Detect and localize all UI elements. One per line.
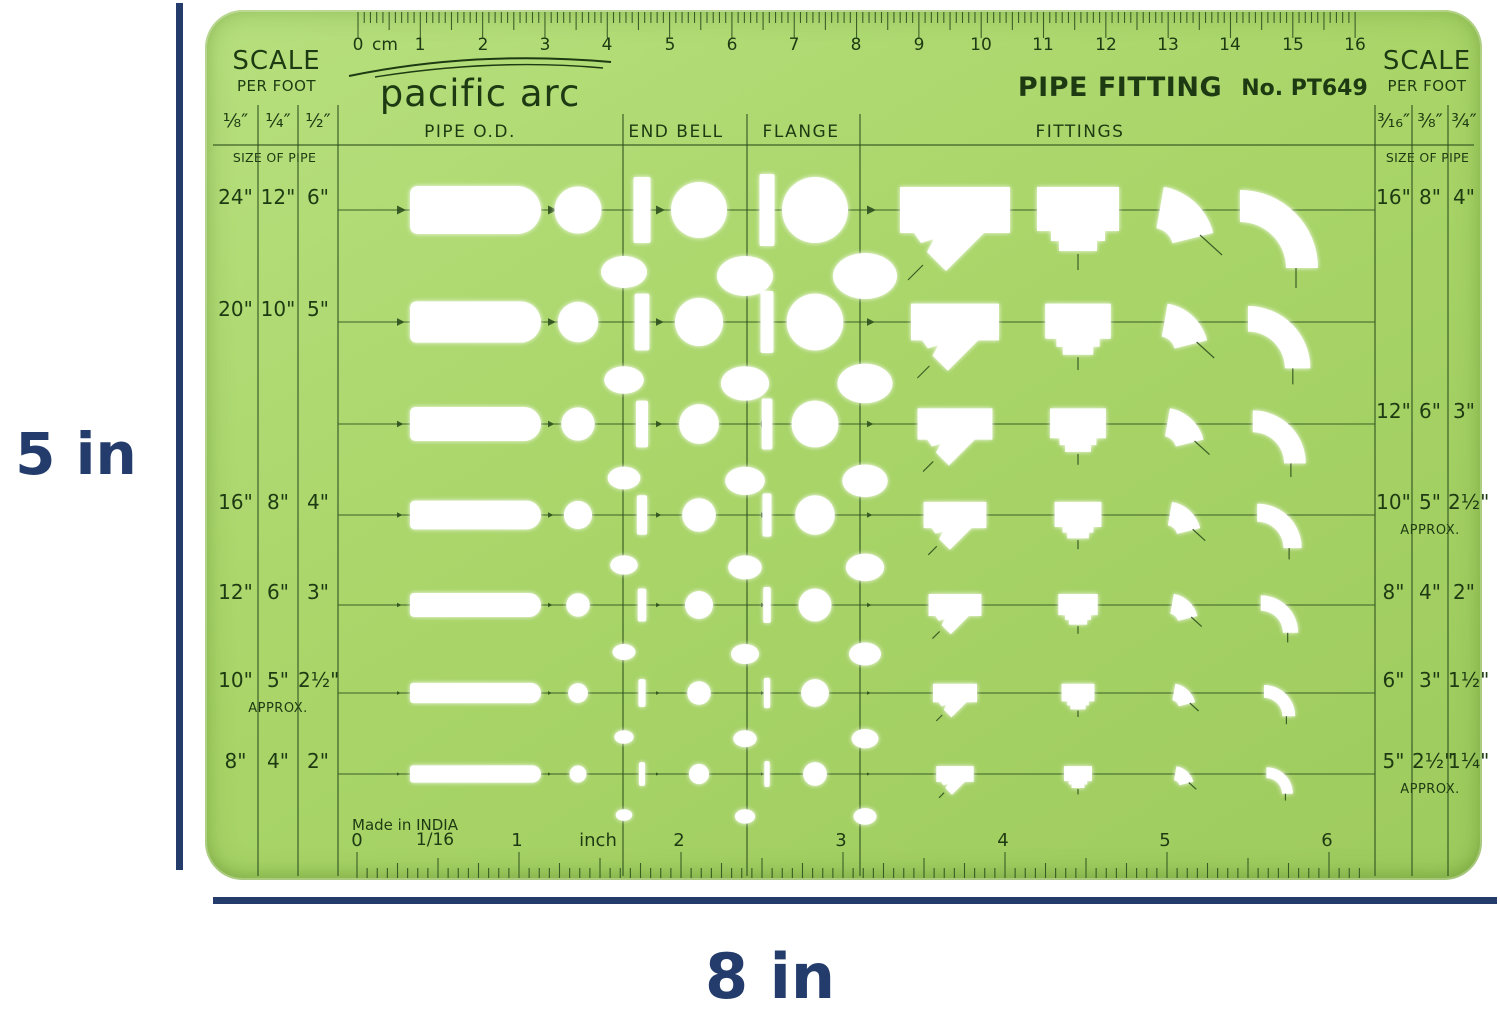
elbow-45-cutout: [1168, 502, 1200, 534]
row-size-label-left: 4": [258, 749, 298, 773]
gasket-ellipse-cutout: [601, 256, 647, 288]
left-size-of-pipe-label: SIZE OF PIPE: [211, 150, 338, 165]
elbow-90-cutout: [1264, 685, 1295, 716]
row-size-label-right: 12": [1375, 399, 1412, 423]
pipe-od-cutout: [410, 186, 541, 234]
gasket-ellipse-cutout: [616, 809, 633, 821]
row-size-label-left: 12": [258, 185, 298, 209]
flange-circle-cutout: [803, 762, 827, 786]
row-size-label-right: 2": [1448, 580, 1480, 604]
cm-ruler-number: 13: [1151, 35, 1185, 55]
stencil-cutouts: [410, 174, 1318, 825]
inch-ruler-label: 1: [487, 830, 547, 851]
lateral-fitting-cutout: [900, 187, 1010, 271]
end-bell-circle-cutout: [671, 182, 727, 238]
coupling-circle-cutout: [558, 302, 598, 342]
gasket-ellipse-cutout: [849, 643, 881, 666]
end-bell-bar-cutout: [634, 177, 651, 243]
gasket-ellipse-cutout: [610, 555, 638, 574]
row-size-label-right: 4": [1448, 185, 1480, 209]
stencil-row: [410, 761, 1293, 825]
width-dimension-line: [213, 897, 1497, 904]
row-approx-note-right: APPROX.: [1383, 523, 1477, 538]
flange-bar-cutout: [764, 678, 770, 708]
stencil-row: [410, 678, 1295, 748]
elbow-45-cutout: [1165, 408, 1204, 446]
row-size-label-left: 24": [213, 185, 258, 209]
end-bell-bar-cutout: [638, 679, 645, 707]
row-size-label-right: 2½": [1448, 490, 1480, 514]
row-size-label-left: 2": [298, 749, 338, 773]
row-size-label-left: 20": [213, 297, 258, 321]
lateral-fitting-cutout: [933, 684, 977, 718]
left-scale-subtitle: PER FOOT: [215, 77, 338, 95]
inch-ruler-label: 3: [811, 830, 871, 851]
cm-ruler-number: 1: [403, 35, 437, 55]
elbow-45-cutout: [1172, 684, 1195, 707]
inch-ruler-label: 1/16: [405, 830, 465, 850]
pipe-fitting-template: SCALE PER FOOT ¹⁄₈″ ¹⁄₄″ ¹⁄₂″ SIZE OF PI…: [205, 10, 1482, 880]
coupling-circle-cutout: [568, 683, 588, 703]
elbow-90-cutout: [1248, 306, 1310, 368]
inch-ruler-label: 2: [649, 830, 709, 851]
inch-ruler-label: 4: [973, 830, 1033, 851]
row-size-label-left: 4": [298, 490, 338, 514]
pipe-od-cutout: [410, 301, 541, 342]
header-end-bell: END BELL: [616, 122, 736, 142]
cm-ruler-number: 11: [1026, 35, 1060, 55]
grid-lines: [213, 105, 1474, 876]
right-scale-fraction-3-16: ³⁄₁₆″: [1375, 110, 1412, 132]
tee-fitting-cutout: [1050, 408, 1106, 452]
gasket-ellipse-cutout: [721, 366, 769, 400]
row-size-label-right: 10": [1375, 490, 1412, 514]
row-size-label-right: 6": [1375, 668, 1412, 692]
cm-ruler-number: 14: [1213, 35, 1247, 55]
right-scale-fraction-3-4: ³⁄₄″: [1448, 110, 1480, 132]
left-scale-fraction-1-8: ¹⁄₈″: [213, 110, 258, 132]
header-fittings: FITTINGS: [980, 122, 1180, 142]
flange-circle-cutout: [782, 177, 848, 243]
cm-unit-label: cm: [371, 35, 399, 55]
row-size-label-left: 3": [298, 580, 338, 604]
coupling-circle-cutout: [570, 766, 587, 783]
tee-fitting-cutout: [1055, 502, 1102, 538]
pipe-od-cutout: [410, 683, 541, 703]
lateral-fitting-cutout: [918, 408, 993, 465]
gasket-ellipse-cutout: [833, 253, 897, 299]
lateral-fitting-cutout: [911, 304, 999, 371]
pipe-od-cutout: [410, 407, 541, 441]
gasket-ellipse-cutout: [717, 256, 773, 296]
stencil-row: [410, 291, 1310, 403]
flange-circle-cutout: [795, 495, 835, 535]
elbow-90-cutout: [1266, 767, 1293, 794]
elbow-45-cutout: [1170, 594, 1197, 621]
tee-fitting-cutout: [1058, 594, 1097, 625]
gasket-ellipse-cutout: [837, 364, 892, 404]
row-size-label-right: 3": [1448, 399, 1480, 423]
flange-circle-cutout: [801, 679, 829, 707]
row-size-label-right: 4": [1412, 580, 1448, 604]
right-scale-subtitle: PER FOOT: [1377, 77, 1477, 95]
gasket-ellipse-cutout: [852, 729, 879, 748]
elbow-45-cutout: [1174, 766, 1193, 785]
gasket-ellipse-cutout: [614, 730, 633, 743]
flange-bar-cutout: [760, 174, 775, 246]
row-size-label-left: 5": [298, 297, 338, 321]
elbow-90-cutout: [1253, 410, 1306, 463]
product-title: PIPE FITTING: [1015, 72, 1225, 103]
row-size-label-right: 3": [1412, 668, 1448, 692]
row-size-label-left: 10": [213, 668, 258, 692]
end-bell-circle-cutout: [687, 681, 711, 705]
end-bell-circle-cutout: [689, 764, 709, 784]
tee-fitting-cutout: [1045, 304, 1111, 355]
row-size-label-right: 16": [1375, 185, 1412, 209]
gasket-ellipse-cutout: [608, 467, 641, 490]
cm-ruler-number: 16: [1338, 35, 1372, 55]
pipe-od-cutout: [410, 501, 541, 530]
cm-ruler-number: 12: [1089, 35, 1123, 55]
brand-logo-text: pacific arc: [325, 72, 635, 115]
header-pipe-od: PIPE O.D.: [370, 122, 570, 142]
row-size-label-left: 6": [298, 185, 338, 209]
row-size-label-left: 2½": [298, 668, 338, 692]
pipe-od-cutout: [410, 593, 541, 617]
gasket-ellipse-cutout: [725, 467, 765, 495]
flange-bar-cutout: [762, 398, 773, 449]
row-size-label-right: 1½": [1448, 668, 1480, 692]
row-size-label-right: 8": [1375, 580, 1412, 604]
inch-ruler-label: 6: [1297, 830, 1357, 851]
row-size-label-left: 16": [213, 490, 258, 514]
inch-ruler-label: 5: [1135, 830, 1195, 851]
row-line-arrows: [397, 206, 876, 776]
coupling-circle-cutout: [555, 187, 602, 234]
tee-fitting-cutout: [1064, 766, 1092, 788]
inch-ruler-ticks: [357, 852, 1359, 878]
elbow-90-cutout: [1257, 504, 1302, 549]
gasket-ellipse-cutout: [733, 730, 757, 747]
tee-fitting-cutout: [1037, 187, 1119, 251]
cm-ruler-number: 9: [902, 35, 936, 55]
right-scale-title: SCALE: [1377, 46, 1477, 76]
inch-ruler-label: 0: [327, 830, 387, 851]
row-size-label-left: 5": [258, 668, 298, 692]
end-bell-circle-cutout: [682, 498, 716, 532]
end-bell-bar-cutout: [637, 495, 647, 535]
lateral-fitting-cutout: [929, 594, 982, 634]
cm-ruler-number: 2: [466, 35, 500, 55]
cm-ruler-number: 10: [964, 35, 998, 55]
flange-circle-cutout: [792, 401, 839, 448]
flange-bar-cutout: [761, 291, 774, 353]
row-approx-note-right: APPROX.: [1383, 782, 1477, 797]
gasket-ellipse-cutout: [842, 465, 887, 498]
stencil-row: [410, 174, 1318, 299]
row-size-label-left: 8": [213, 749, 258, 773]
lateral-fitting-cutout: [924, 502, 987, 550]
cm-ruler-number: 5: [653, 35, 687, 55]
cm-ruler-number: 8: [839, 35, 873, 55]
elbow-45-cutout: [1162, 304, 1207, 349]
flange-bar-cutout: [764, 761, 769, 787]
cm-ruler-number: 0: [341, 35, 375, 55]
row-size-label-right: 2½": [1412, 749, 1448, 773]
row-size-label-left: 12": [213, 580, 258, 604]
row-size-label-right: 6": [1412, 399, 1448, 423]
end-bell-circle-cutout: [679, 404, 719, 444]
cm-ruler-number: 4: [590, 35, 624, 55]
row-size-label-left: 8": [258, 490, 298, 514]
left-scale-fraction-1-4: ¹⁄₄″: [258, 110, 298, 132]
row-size-label-left: 6": [258, 580, 298, 604]
right-size-of-pipe-label: SIZE OF PIPE: [1375, 150, 1480, 165]
flange-bar-cutout: [763, 493, 772, 536]
header-flange: FLANGE: [751, 122, 851, 142]
flange-circle-cutout: [787, 294, 844, 351]
gasket-ellipse-cutout: [846, 554, 884, 582]
stencil-row: [410, 493, 1302, 581]
row-size-label-right: 5": [1375, 749, 1412, 773]
right-scale-fraction-3-8: ³⁄₈″: [1412, 110, 1448, 132]
end-bell-bar-cutout: [635, 294, 650, 351]
coupling-circle-cutout: [566, 593, 590, 617]
model-number: No. PT649: [1227, 76, 1382, 101]
end-bell-circle-cutout: [685, 591, 713, 619]
row-size-label-left: 10": [258, 297, 298, 321]
pipe-od-cutout: [410, 765, 541, 782]
width-dimension-label: 8 in: [620, 940, 920, 1013]
elbow-90-cutout: [1261, 595, 1298, 632]
cm-ruler-number: 7: [777, 35, 811, 55]
gasket-ellipse-cutout: [728, 555, 762, 579]
end-bell-circle-cutout: [675, 298, 723, 346]
coupling-circle-cutout: [561, 407, 594, 440]
row-size-label-right: 5": [1412, 490, 1448, 514]
elbow-45-cutout: [1157, 187, 1214, 243]
cm-ruler-number: 6: [715, 35, 749, 55]
lateral-fitting-cutout: [936, 766, 973, 795]
height-dimension-line: [176, 3, 183, 870]
elbow-90-cutout: [1240, 190, 1318, 268]
flange-bar-cutout: [763, 587, 771, 623]
fitting-leader-ticks: [908, 235, 1296, 801]
left-scale-title: SCALE: [215, 46, 338, 76]
tee-fitting-cutout: [1062, 684, 1095, 710]
stencil-row: [410, 587, 1298, 666]
inch-ruler-label: inch: [568, 830, 628, 851]
stencil-row: [410, 398, 1306, 497]
gasket-ellipse-cutout: [604, 366, 644, 394]
end-bell-bar-cutout: [639, 762, 645, 786]
row-size-label-right: 8": [1412, 185, 1448, 209]
height-dimension-label: 5 in: [0, 420, 152, 488]
gasket-ellipse-cutout: [735, 809, 755, 823]
end-bell-bar-cutout: [638, 589, 647, 622]
flange-circle-cutout: [799, 589, 832, 622]
end-bell-bar-cutout: [636, 401, 648, 448]
product-image-canvas: 5 in 8 in SCALE PER FOOT ¹⁄₈″ ¹⁄₄″ ¹⁄₂″ …: [0, 0, 1500, 1015]
gasket-ellipse-cutout: [613, 644, 636, 660]
cm-ruler-number: 15: [1276, 35, 1310, 55]
row-approx-note-left: APPROX.: [223, 701, 333, 716]
row-size-label-right: 1¼": [1448, 749, 1480, 773]
coupling-circle-cutout: [564, 501, 592, 529]
cm-ruler-number: 3: [528, 35, 562, 55]
gasket-ellipse-cutout: [731, 644, 759, 664]
gasket-ellipse-cutout: [853, 808, 876, 825]
